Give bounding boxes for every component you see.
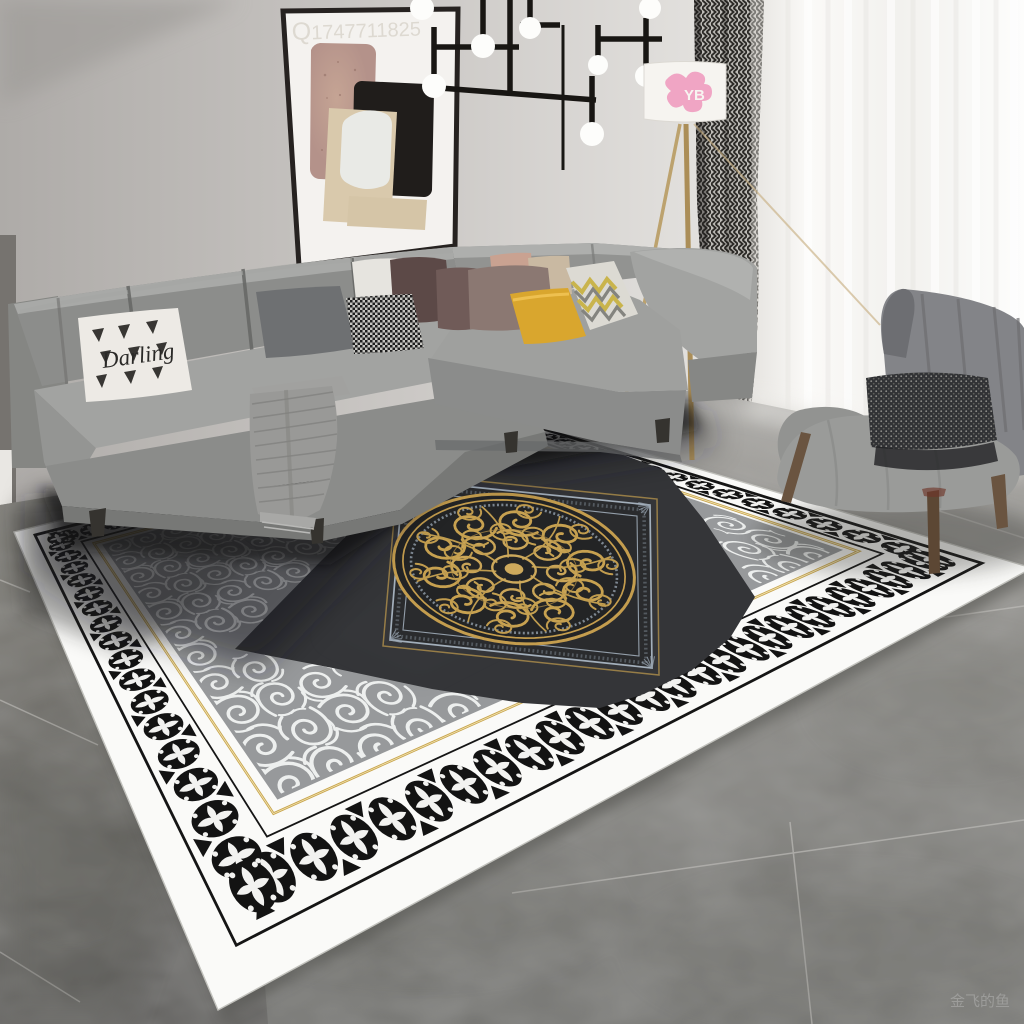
- svg-text:金飞的鱼: 金飞的鱼: [950, 992, 1010, 1010]
- svg-text:YB: YB: [684, 87, 705, 104]
